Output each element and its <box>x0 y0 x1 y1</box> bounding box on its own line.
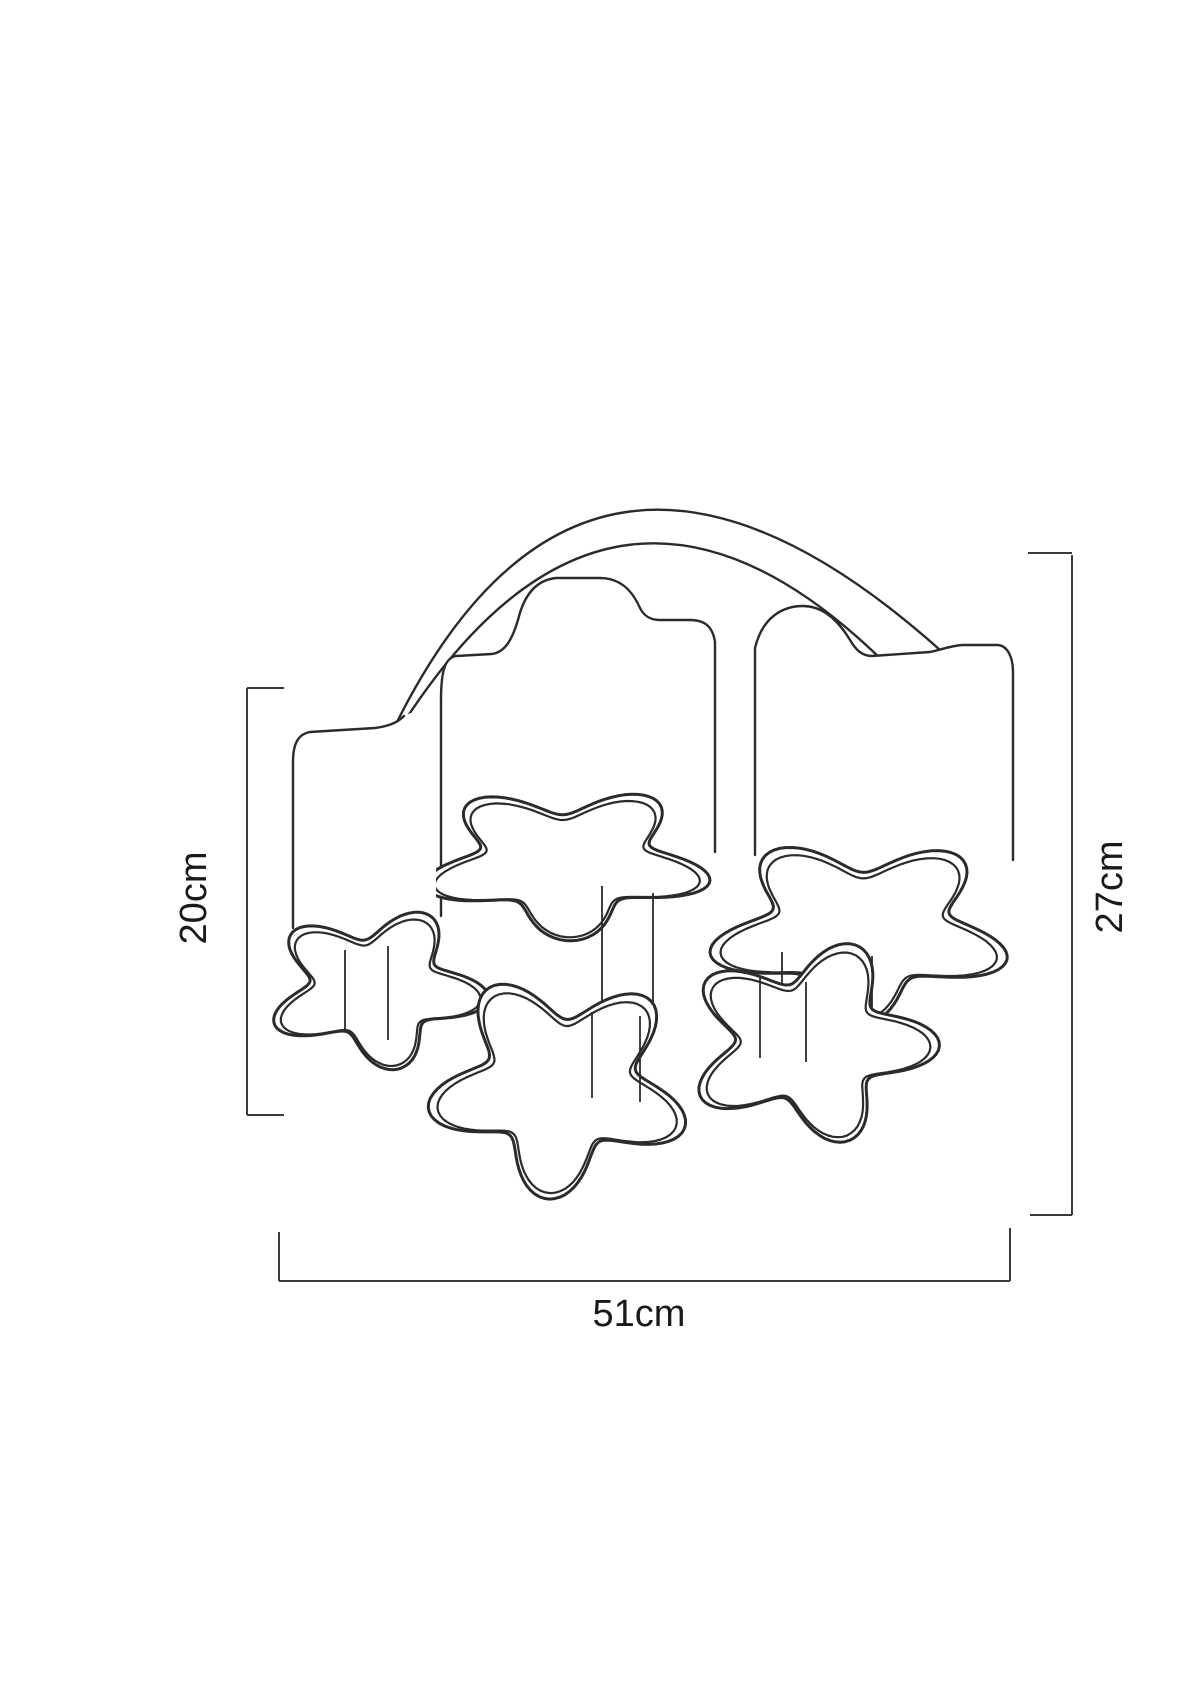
shade-center <box>425 578 715 941</box>
dimension-line-right <box>1028 553 1072 1215</box>
dimension-line-bottom <box>279 1228 1010 1281</box>
dimension-line-left <box>247 688 284 1115</box>
shade-bottom-center-rim <box>428 984 685 1199</box>
shade-bottom-center <box>428 984 685 1199</box>
dimension-label-shade-height: 20cm <box>173 852 215 945</box>
technical-drawing-canvas: 20cm 27cm 51cm <box>0 0 1190 1683</box>
dimension-label-total-width: 51cm <box>593 1293 686 1335</box>
dimension-total-width: 51cm <box>279 1228 1010 1335</box>
lamp-dimension-diagram: 20cm 27cm 51cm <box>0 0 1190 1683</box>
dimension-label-total-height: 27cm <box>1089 841 1131 934</box>
dimension-total-height: 27cm <box>1028 553 1131 1215</box>
dimension-shade-height: 20cm <box>173 688 284 1115</box>
